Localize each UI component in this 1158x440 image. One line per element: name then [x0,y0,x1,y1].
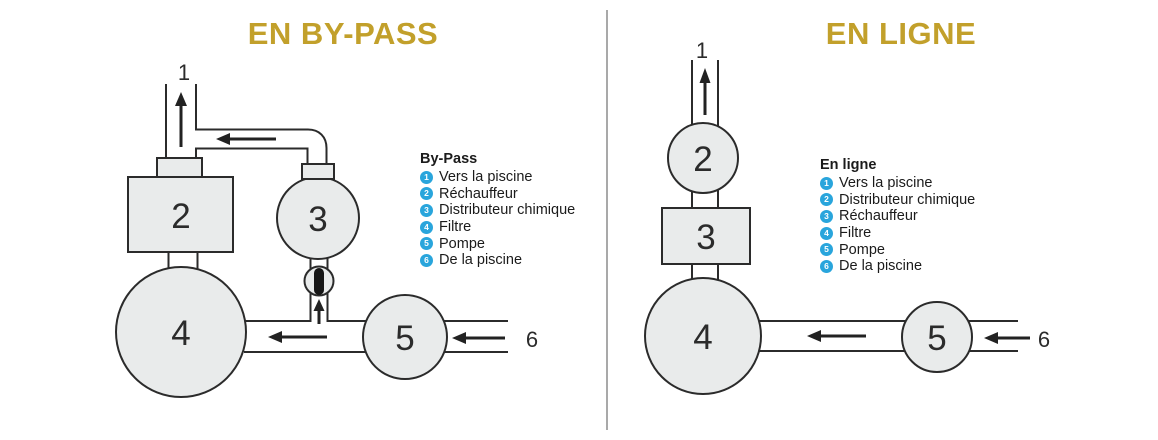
legend-label: Distributeur chimique [839,192,975,208]
bypass-legend-title: By-Pass [420,151,575,168]
bypass-heater-union [157,158,202,177]
legend-item-2: 2 Distributeur chimique [820,192,975,209]
legend-badge-2: 2 [820,193,833,206]
bypass-pump-number: 5 [395,319,414,358]
legend-badge-5: 5 [420,237,433,250]
legend-badge-1: 1 [820,177,833,190]
legend-item-3: 3 Distributeur chimique [420,202,575,219]
bypass-legend: By-Pass 1 Vers la piscine 2 Réchauffeur … [420,151,575,269]
legend-item-5: 5 Pompe [420,235,575,252]
legend-badge-6: 6 [420,254,433,267]
legend-badge-4: 4 [420,221,433,234]
legend-badge-3: 3 [420,204,433,217]
legend-label: Réchauffeur [839,208,918,224]
legend-badge-4: 4 [820,227,833,240]
legend-badge-2: 2 [420,187,433,200]
legend-label: Vers la piscine [439,169,533,185]
legend-badge-5: 5 [820,243,833,256]
legend-item-4: 4 Filtre [820,225,975,242]
legend-item-1: 1 Vers la piscine [820,175,975,192]
plumbing-diagrams: 1 2 3 4 5 6 1 2 3 4 5 6 [0,0,1158,440]
legend-label: Pompe [839,242,885,258]
legend-badge-6: 6 [820,260,833,273]
legend-item-6: 6 De la piscine [420,252,575,269]
inline-filter-number: 4 [693,318,712,357]
legend-label: Vers la piscine [839,175,933,191]
inline-pump-number: 5 [927,319,946,358]
bypass-equipment [116,158,447,397]
legend-item-1: 1 Vers la piscine [420,169,575,186]
legend-label: Réchauffeur [439,186,518,202]
bypass-to-pool-label: 1 [178,60,190,85]
legend-badge-1: 1 [420,171,433,184]
bypass-from-pool-label: 6 [526,327,538,352]
bypass-chem-number: 3 [308,200,327,239]
inline-chem-number: 2 [693,140,712,179]
inline-heater-number: 3 [696,218,715,257]
legend-item-3: 3 Réchauffeur [820,208,975,225]
legend-item-5: 5 Pompe [820,241,975,258]
bypass-filter-number: 4 [171,314,190,353]
legend-item-6: 6 De la piscine [820,258,975,275]
legend-item-2: 2 Réchauffeur [420,186,575,203]
legend-label: Pompe [439,236,485,252]
bypass-chem-union [302,164,334,179]
pool-plumbing-infographic: EN BY-PASS EN LIGNE [0,0,1158,440]
bypass-heater-number: 2 [171,197,190,236]
legend-item-4: 4 Filtre [420,219,575,236]
legend-label: De la piscine [439,252,522,268]
inline-to-pool-label: 1 [696,38,708,63]
legend-badge-3: 3 [820,210,833,223]
legend-label: Filtre [439,219,471,235]
inline-from-pool-label: 6 [1038,327,1050,352]
legend-label: Filtre [839,225,871,241]
legend-label: De la piscine [839,258,922,274]
legend-label: Distributeur chimique [439,202,575,218]
inline-legend: En ligne 1 Vers la piscine 2 Distributeu… [820,157,975,275]
inline-legend-title: En ligne [820,157,975,174]
